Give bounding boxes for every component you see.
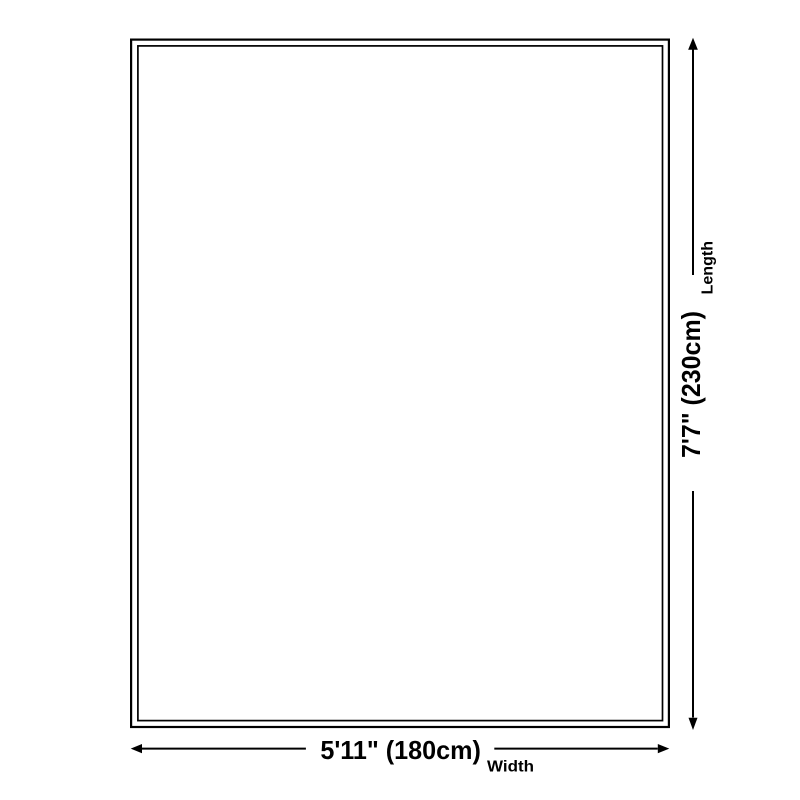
svg-text:Width: Width bbox=[487, 758, 534, 775]
svg-text:Length: Length bbox=[700, 241, 717, 295]
svg-text:5'11" (180cm): 5'11" (180cm) bbox=[320, 735, 481, 765]
svg-text:7'7" (230cm): 7'7" (230cm) bbox=[676, 311, 706, 458]
